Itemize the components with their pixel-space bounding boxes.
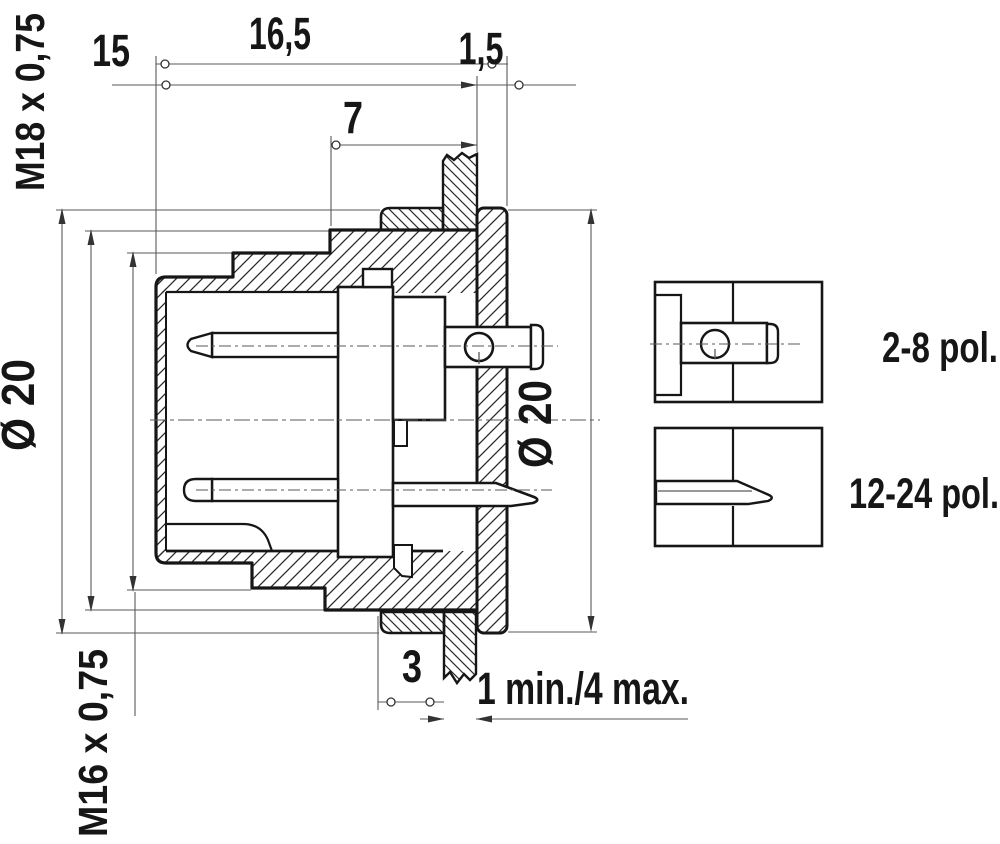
main-cross-section [156,153,543,683]
dim-length-to-flange-label: 15 [92,25,130,76]
thread-m18-label: M18 x 0,75 [7,13,53,191]
thread-m16-label: M16 x 0,75 [70,649,116,837]
dim-total-length-label: 16,5 [249,8,311,59]
detail-view-round-contact [655,282,822,402]
variant-12-24-pol-label: 12-24 pol. [849,470,999,518]
technical-drawing-page: 16,5 15 1,5 7 3 1 min./4 max. M18 x 0,75… [0,0,1000,844]
dim-flange-thickness-label: 1,5 [459,23,504,74]
dim-thread-length-label: 7 [343,92,363,143]
detail-view-flat-contact [655,428,822,546]
dim-nut-thickness-label: 3 [402,641,422,692]
technical-drawing-canvas: 16,5 15 1,5 7 3 1 min./4 max. M18 x 0,75… [0,0,1000,844]
diameter-left-label: Ø 20 [0,359,44,451]
dim-panel-thickness-label: 1 min./4 max. [477,663,689,714]
diameter-right-label: Ø 20 [509,380,561,468]
variant-2-8-pol-label: 2-8 pol. [882,324,998,372]
